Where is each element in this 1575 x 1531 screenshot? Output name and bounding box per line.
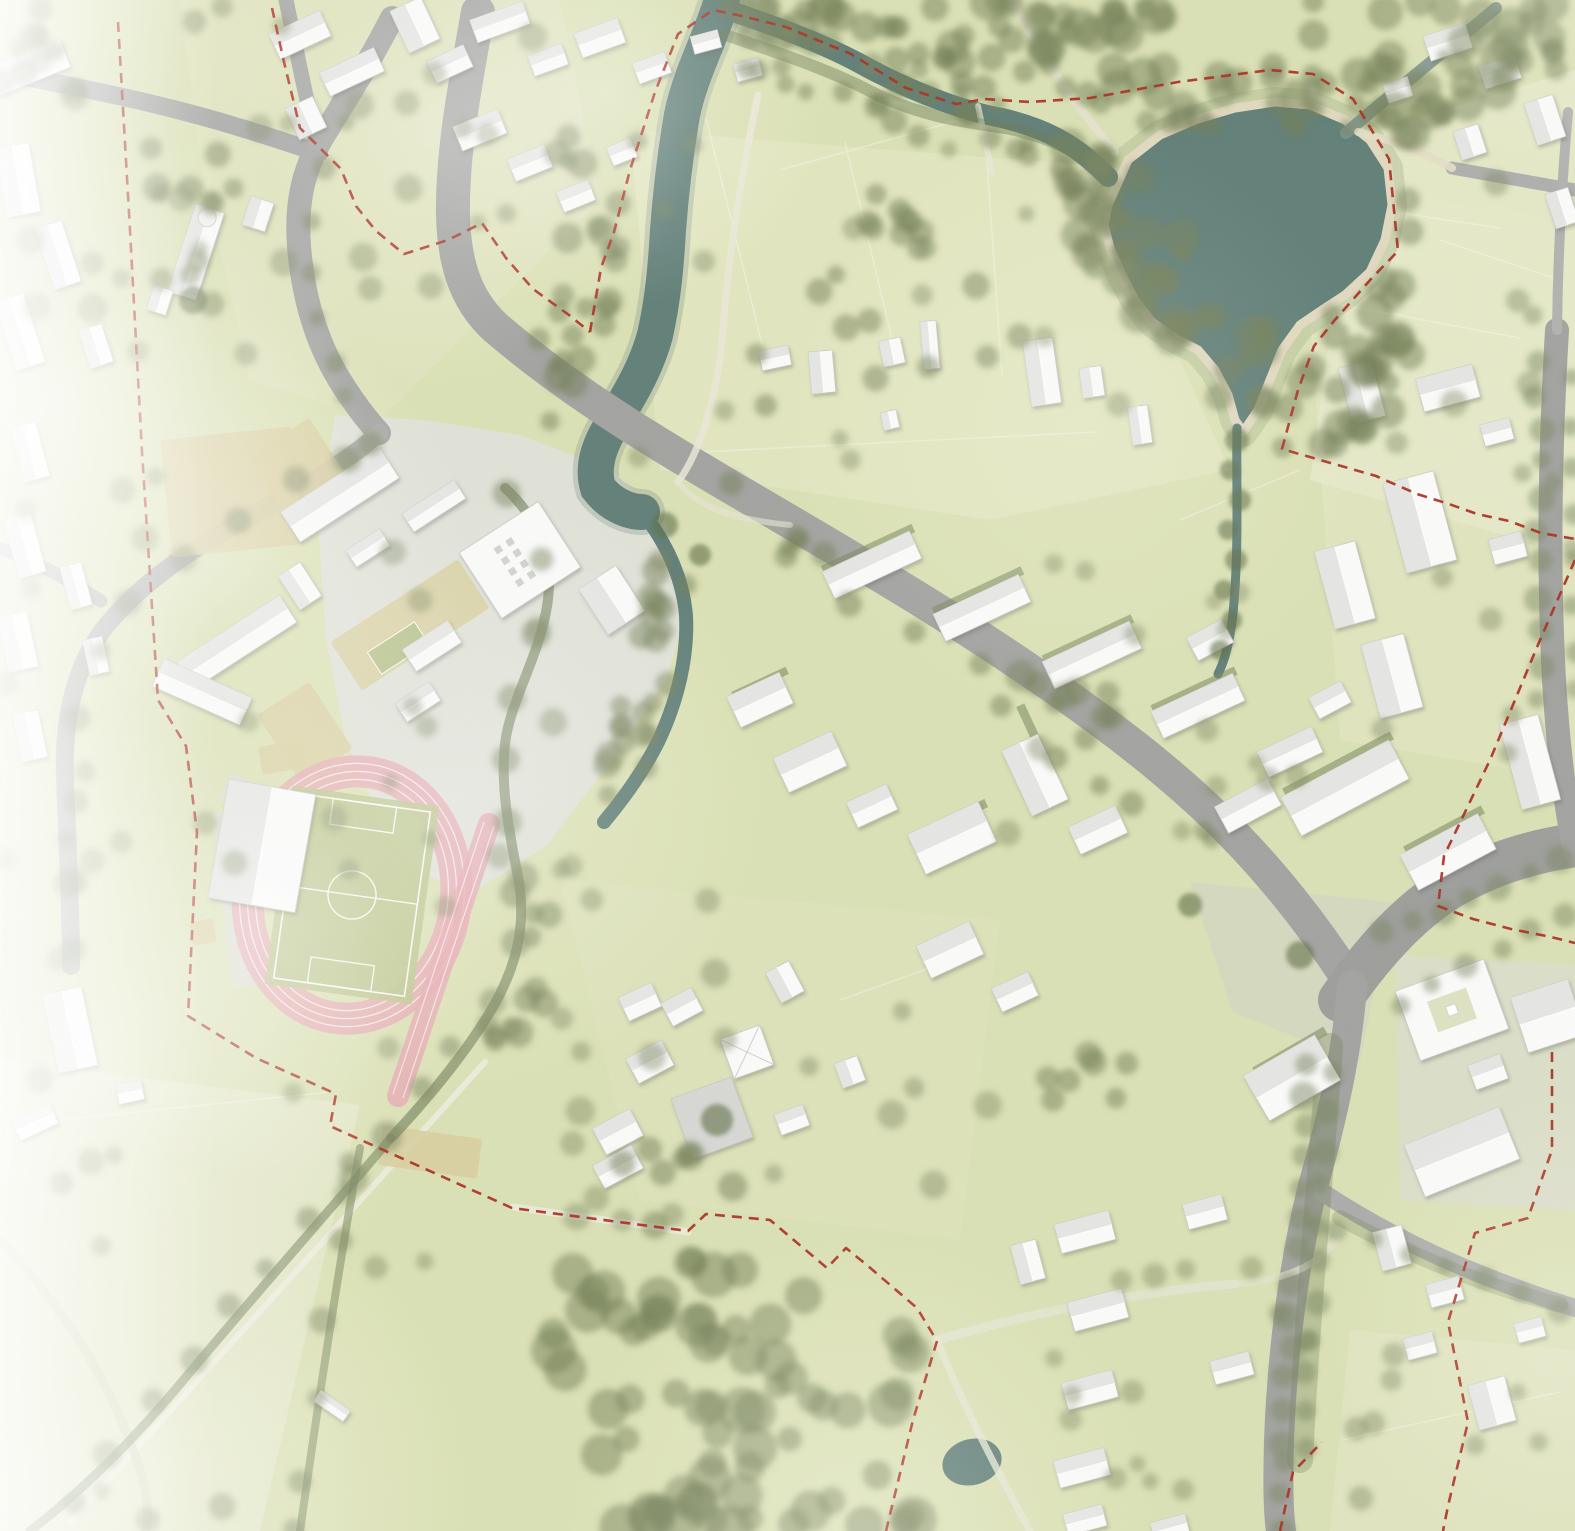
map-canvas xyxy=(0,0,1575,1531)
paper-grain xyxy=(0,0,1575,1531)
site-plan-map xyxy=(0,0,1575,1531)
